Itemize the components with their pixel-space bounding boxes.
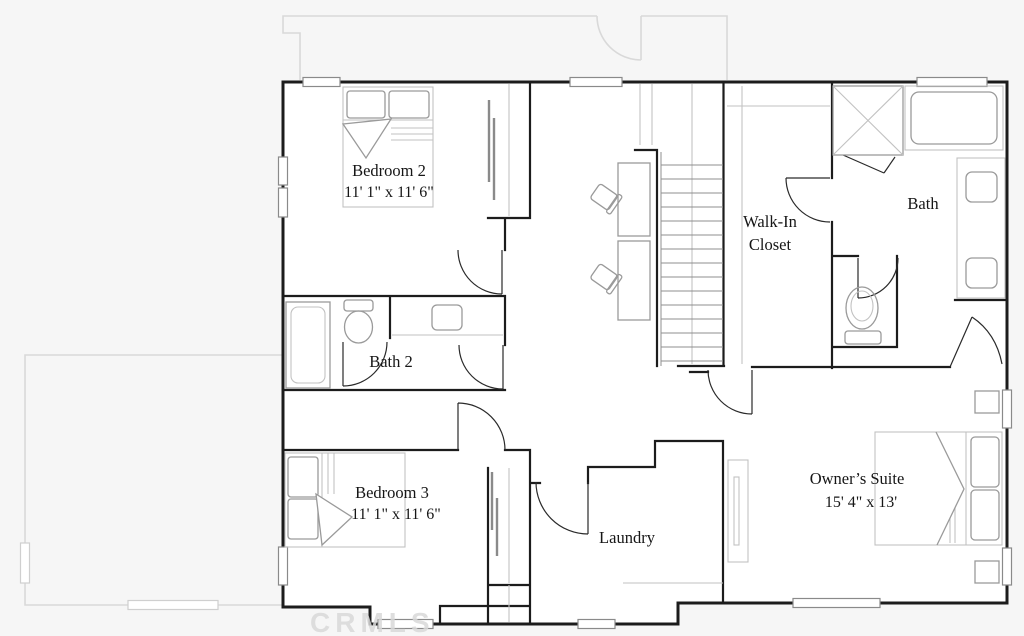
window bbox=[279, 547, 288, 585]
ghost-garage-outline bbox=[25, 355, 283, 605]
ghost-window bbox=[128, 601, 218, 610]
window bbox=[1003, 390, 1012, 428]
room-label-bedroom3: Bedroom 3 bbox=[355, 483, 429, 502]
room-label-bath: Bath bbox=[907, 194, 939, 213]
window bbox=[279, 188, 288, 217]
room-label-owners-suite: Owner’s Suite bbox=[810, 469, 905, 488]
window bbox=[1003, 548, 1012, 585]
ghost-roof-left bbox=[283, 16, 597, 80]
window bbox=[917, 78, 987, 87]
room-label-laundry: Laundry bbox=[599, 528, 656, 547]
room-label-walkin-line2: Closet bbox=[749, 235, 792, 254]
room-label-bath2: Bath 2 bbox=[369, 352, 413, 371]
ghost-window bbox=[21, 543, 30, 583]
ghost-door-arc bbox=[597, 16, 641, 60]
window bbox=[578, 620, 615, 629]
room-dims-bedroom3: 11' 1" x 11' 6" bbox=[351, 506, 441, 523]
window bbox=[303, 78, 340, 87]
window bbox=[279, 157, 288, 185]
watermark: CRMLS bbox=[310, 607, 435, 636]
window bbox=[793, 599, 880, 608]
room-dims-owners-suite: 15' 4" x 13' bbox=[825, 494, 897, 511]
room-label-walkin-line1: Walk-In bbox=[743, 212, 797, 231]
floor-plan-page: Bedroom 2 11' 1" x 11' 6" Bath 2 Walk-In… bbox=[0, 0, 1024, 636]
ghost-roof-right bbox=[641, 16, 727, 80]
room-label-bedroom2: Bedroom 2 bbox=[352, 161, 426, 180]
room-dims-bedroom2: 11' 1" x 11' 6" bbox=[344, 184, 434, 201]
window bbox=[570, 78, 622, 87]
floor-plan: Bedroom 2 11' 1" x 11' 6" Bath 2 Walk-In… bbox=[0, 0, 1024, 636]
